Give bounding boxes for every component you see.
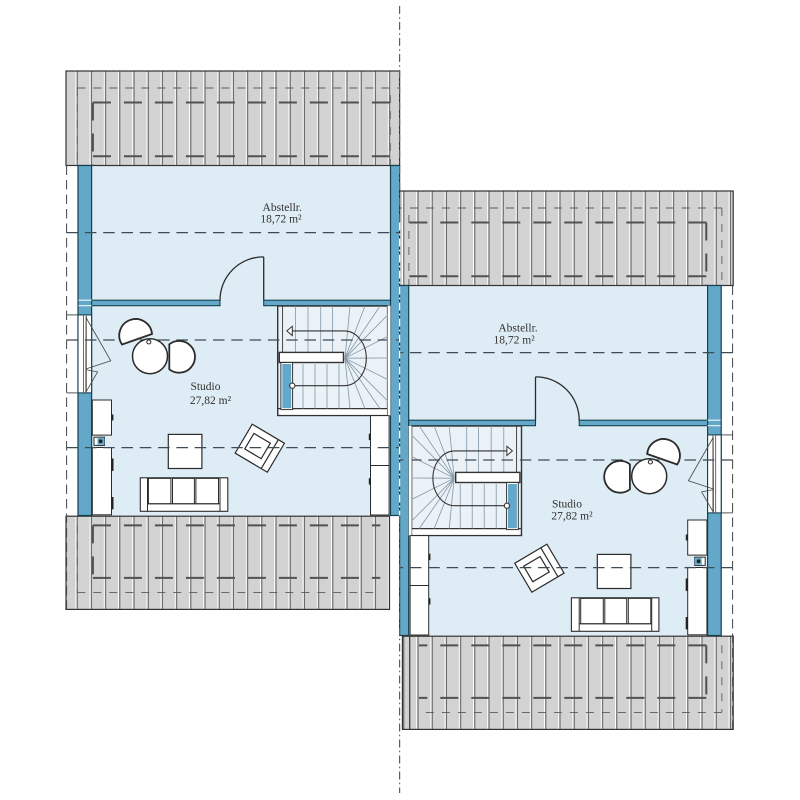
svg-text:Studio: Studio [190,381,220,393]
svg-text:Abstellr.: Abstellr. [263,202,302,214]
svg-text:27,82 m²: 27,82 m² [551,511,593,523]
svg-text:18,72 m²: 18,72 m² [260,213,302,225]
svg-text:27,82 m²: 27,82 m² [190,395,232,407]
svg-text:Abstellr.: Abstellr. [498,322,537,334]
svg-text:Studio: Studio [552,499,582,511]
svg-text:18,72 m²: 18,72 m² [494,334,536,346]
